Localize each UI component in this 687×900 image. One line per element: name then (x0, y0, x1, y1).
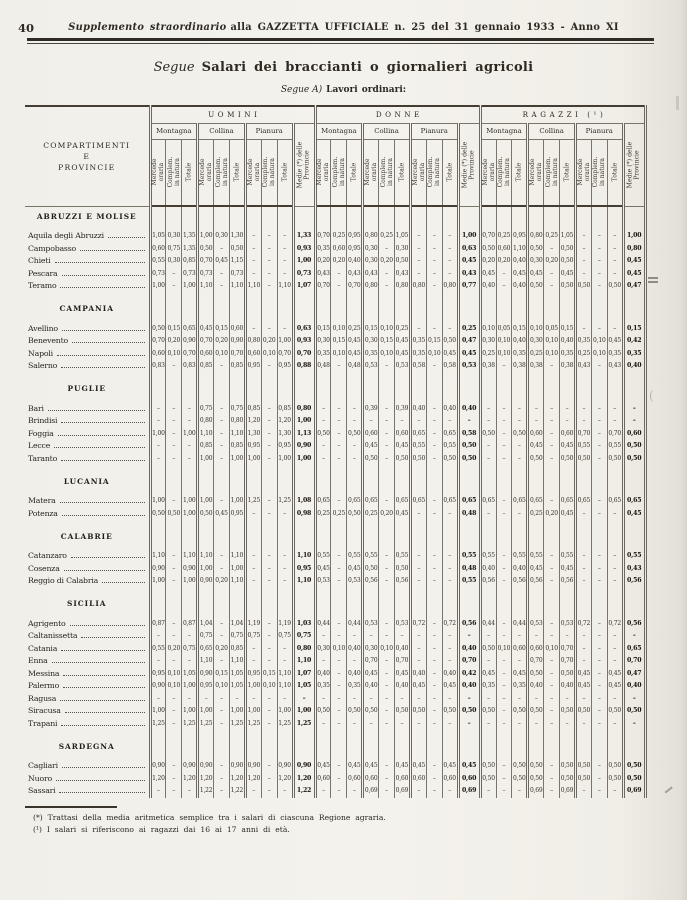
wage-value-cell: 0,50 (395, 563, 411, 576)
spacer-cell (198, 488, 214, 495)
wage-value-cell: 1,00 (182, 280, 198, 293)
wage-value-cell: 0,50 (410, 453, 426, 466)
region-header-cell (261, 210, 277, 223)
wage-value-cell: 0,95 (512, 230, 528, 243)
wage-value-cell: 1,05 (229, 680, 245, 693)
wage-value-cell: – (591, 630, 607, 643)
medie-value-cell: 0,47 (623, 280, 645, 293)
wage-value-cell: – (591, 575, 607, 588)
region-header-cell (442, 530, 458, 543)
province-name: Salerno (28, 362, 57, 370)
document-title: SegueSalari dei braccianti o giornalieri… (0, 60, 687, 75)
wage-value-cell: – (261, 563, 277, 576)
wage-value-cell: 0,90 (150, 680, 166, 693)
region-header-cell (496, 475, 512, 488)
spacer-cell (315, 316, 331, 323)
spacer-cell (229, 465, 245, 475)
wage-table-body: ABRUZZI E MOLISEAquila degli Abruzzi1,05… (25, 206, 645, 798)
region-header-cell (410, 383, 426, 396)
region-header-cell (166, 210, 182, 223)
region-header-cell (480, 210, 496, 223)
medie-value-cell: 0,42 (458, 668, 480, 681)
wage-value-cell: 1,22 (198, 785, 214, 798)
wage-value-cell: – (426, 630, 442, 643)
spacer-cell (480, 465, 496, 475)
wage-value-cell: 0,85 (198, 360, 214, 373)
wage-value-cell: – (496, 718, 512, 731)
wage-value-cell: – (410, 718, 426, 731)
wage-value-cell: – (277, 323, 293, 336)
spacer-cell (277, 753, 293, 760)
region-header-cell (277, 303, 293, 316)
medie-value-cell: 0,53 (458, 360, 480, 373)
province-name: Caltanissetta (28, 632, 77, 640)
spacer-cell (315, 293, 331, 303)
wage-value-cell: – (277, 508, 293, 521)
region-title-cell: LUCANIA (25, 475, 150, 488)
wage-value-cell: – (496, 550, 512, 563)
spacer-cell (575, 373, 591, 383)
wage-value-cell: 0,40 (512, 335, 528, 348)
wage-value-cell: 0,40 (363, 680, 379, 693)
wage-value-cell: – (426, 268, 442, 281)
wage-value-cell: – (544, 440, 560, 453)
wage-value-cell: – (245, 575, 261, 588)
wage-value-cell: 0,60 (528, 643, 544, 656)
wage-value-cell: – (214, 760, 230, 773)
wage-value-cell: 0,55 (315, 550, 331, 563)
subcol-header-label: Complem. in natura (379, 155, 393, 189)
wage-value-cell: – (214, 243, 230, 256)
spacer-cell (607, 730, 623, 740)
wage-value-cell: – (512, 415, 528, 428)
wage-value-cell: – (544, 773, 560, 786)
wage-value-cell: – (496, 268, 512, 281)
medie-value-cell: 0,80 (623, 243, 645, 256)
wage-value-cell: 0,45 (575, 680, 591, 693)
region-header-cell (182, 530, 198, 543)
spacer-cell (379, 316, 395, 323)
spacer-cell (150, 223, 166, 230)
spacer-cell (198, 223, 214, 230)
wage-value-cell: – (331, 693, 347, 706)
medie-value-cell: 0,50 (458, 453, 480, 466)
medie-value-cell: – (458, 693, 480, 706)
wage-value-cell: – (315, 718, 331, 731)
wage-value-cell: 0,70 (198, 335, 214, 348)
wage-value-cell: 0,25 (528, 348, 544, 361)
medie-value-cell: 0,65 (623, 495, 645, 508)
wage-value-cell: 0,65 (560, 495, 576, 508)
wage-value-cell: – (261, 243, 277, 256)
spacer-cell (607, 488, 623, 495)
wage-value-cell: – (512, 508, 528, 521)
province-row: Chieti0,550,300,850,700,451,15–––1,000,2… (25, 255, 645, 268)
subcol-header-label: Mercede oraria (577, 155, 591, 189)
region-header-cell (458, 598, 480, 611)
spacer-cell (182, 488, 198, 495)
region-header-cell (261, 303, 277, 316)
wage-value-cell: 0,60 (410, 773, 426, 786)
zone-header-uomini: Collina (198, 123, 246, 139)
region-header-cell (528, 210, 544, 223)
province-row: Nuoro1,20–1,201,20–1,201,20–1,201,200,60… (25, 773, 645, 786)
wage-value-cell: – (277, 693, 293, 706)
region-header-cell (458, 303, 480, 316)
province-name-wrap: Campobasso (25, 245, 149, 253)
spacer-cell (426, 396, 442, 403)
medie-value-cell: 0,69 (458, 785, 480, 798)
spacer-cell (544, 543, 560, 550)
spacer-cell (410, 316, 426, 323)
wage-value-cell: – (426, 255, 442, 268)
wage-value-cell: – (480, 718, 496, 731)
spacer-cell (261, 488, 277, 495)
province-name: Teramo (28, 282, 56, 290)
wage-value-cell: 0,05 (544, 323, 560, 336)
wage-value-cell: 1,10 (229, 550, 245, 563)
province-name: Cosenza (28, 565, 60, 573)
wage-value-cell: 0,40 (347, 643, 363, 656)
spacer-cell (182, 293, 198, 303)
region-header-cell (623, 475, 645, 488)
wage-value-cell: – (277, 643, 293, 656)
wage-value-cell: – (480, 693, 496, 706)
spacer-cell (623, 373, 645, 383)
wage-value-cell: 0,56 (512, 575, 528, 588)
medie-value-cell: 0,50 (458, 440, 480, 453)
spacer-cell (528, 611, 544, 618)
spacer-cell (512, 293, 528, 303)
province-row: Sassari–––1,22–1,22–––1,22–––0,69–0,69––… (25, 785, 645, 798)
wage-value-cell: 0,50 (560, 255, 576, 268)
wage-value-cell: – (261, 773, 277, 786)
dot-leader (61, 650, 144, 651)
medie-value-cell: 0,80 (293, 403, 315, 416)
wage-value-cell: – (607, 323, 623, 336)
wage-value-cell: 1,05 (182, 668, 198, 681)
spacer-cell (166, 588, 182, 598)
region-header-cell (591, 383, 607, 396)
spacer-cell (245, 293, 261, 303)
wage-value-cell: – (560, 718, 576, 731)
wage-value-cell: 0,30 (315, 643, 331, 656)
wage-value-cell: – (379, 243, 395, 256)
wage-value-cell: 0,50 (363, 563, 379, 576)
region-header-cell (575, 210, 591, 223)
wage-value-cell: 0,10 (214, 680, 230, 693)
wage-value-cell: – (410, 508, 426, 521)
wage-value-cell: – (261, 655, 277, 668)
wage-value-cell: 0,65 (480, 495, 496, 508)
wage-value-cell: 1,00 (150, 495, 166, 508)
wage-value-cell: – (363, 415, 379, 428)
wage-value-cell: 0,55 (607, 440, 623, 453)
province-name: Foggia (28, 430, 54, 438)
spacer-cell (293, 753, 315, 760)
wage-value-cell: – (591, 453, 607, 466)
province-name-wrap: Bari (25, 405, 149, 413)
wage-value-cell: 0,75 (198, 403, 214, 416)
wage-value-cell: 0,50 (560, 453, 576, 466)
wage-value-cell: – (426, 440, 442, 453)
wage-value-cell: 0,70 (575, 428, 591, 441)
spacer-cell (245, 488, 261, 495)
region-title-cell: CALABRIE (25, 530, 150, 543)
wage-value-cell: 0,10 (544, 335, 560, 348)
spacer-cell (480, 611, 496, 618)
spacer-cell (25, 465, 150, 475)
spacer-cell (496, 223, 512, 230)
spacer-cell (293, 520, 315, 530)
wage-value-cell: 0,45 (395, 668, 411, 681)
wage-value-cell: 0,65 (347, 495, 363, 508)
region-header-cell (528, 740, 544, 753)
wage-value-cell: 0,90 (150, 563, 166, 576)
spacer-cell (182, 753, 198, 760)
wage-value-cell: – (261, 440, 277, 453)
wage-value-cell: 0,50 (198, 508, 214, 521)
spacer-cell (245, 465, 261, 475)
medie-value-cell: 1,33 (293, 230, 315, 243)
wage-value-cell: 0,65 (410, 428, 426, 441)
subcol-header-label: Mercede oraria (529, 155, 543, 189)
subcol-header-label: Complem. in natura (592, 155, 606, 189)
wage-value-cell: 0,20 (480, 255, 496, 268)
spacer-cell (528, 588, 544, 598)
wage-value-cell: – (480, 508, 496, 521)
region-header-cell (480, 598, 496, 611)
dot-leader (60, 700, 144, 701)
region-header-cell (480, 530, 496, 543)
wage-value-cell: 0,45 (512, 668, 528, 681)
wage-value-cell: 0,10 (166, 680, 182, 693)
province-name: Brindisi (28, 417, 57, 425)
subcol-header-uomini: Totale (229, 139, 245, 206)
medie-value-cell: 0,42 (623, 335, 645, 348)
spacer-cell (245, 588, 261, 598)
wage-value-cell: – (575, 785, 591, 798)
dot-leader (71, 557, 145, 558)
wage-value-cell: 0,70 (480, 230, 496, 243)
wage-value-cell: 1,25 (150, 718, 166, 731)
wage-value-cell: – (166, 268, 182, 281)
province-row: Brindisi–––0,80–0,801,20–1,201,00–––––––… (25, 415, 645, 428)
spacer-cell (182, 730, 198, 740)
wage-value-cell: – (544, 680, 560, 693)
wage-value-cell: 0,85 (229, 643, 245, 656)
spacer-cell (458, 488, 480, 495)
region-header-cell (315, 475, 331, 488)
wage-value-cell: 0,35 (410, 335, 426, 348)
spacer-cell (575, 396, 591, 403)
spacer-cell (442, 588, 458, 598)
region-header-cell (442, 475, 458, 488)
spacer-cell (528, 396, 544, 403)
wage-value-cell: 0,90 (182, 760, 198, 773)
province-name: Matera (28, 497, 56, 505)
spacer-cell (150, 520, 166, 530)
spacer-cell (591, 373, 607, 383)
wage-value-cell: 0,60 (245, 348, 261, 361)
wage-value-cell: – (166, 705, 182, 718)
region-header-cell (623, 530, 645, 543)
wage-value-cell: – (426, 230, 442, 243)
wage-value-cell: – (544, 280, 560, 293)
spacer-cell (442, 373, 458, 383)
spacer-cell (410, 753, 426, 760)
wage-value-cell: – (591, 230, 607, 243)
wage-value-cell: – (331, 453, 347, 466)
province-row: Lecce–––0,85–0,850,95–0,950,90–––0,45–0,… (25, 440, 645, 453)
wage-value-cell: 0,20 (214, 575, 230, 588)
wage-value-cell: – (496, 280, 512, 293)
wage-value-cell: – (426, 718, 442, 731)
wage-value-cell: 0,15 (426, 335, 442, 348)
wage-value-cell: 0,80 (410, 280, 426, 293)
wage-value-cell: 0,30 (528, 255, 544, 268)
spacer-cell (150, 373, 166, 383)
wage-value-cell: 0,83 (182, 360, 198, 373)
wage-value-cell: – (410, 268, 426, 281)
wage-value-cell: 1,00 (198, 705, 214, 718)
wage-value-cell: – (496, 428, 512, 441)
medie-value-cell: 0,75 (293, 630, 315, 643)
wage-value-cell: 0,35 (347, 680, 363, 693)
province-name: Nuoro (28, 775, 52, 783)
wage-value-cell: – (150, 403, 166, 416)
region-header-cell (150, 383, 166, 396)
medie-value-cell: 0,60 (623, 428, 645, 441)
wage-value-cell: 0,70 (363, 655, 379, 668)
spacer-cell (277, 223, 293, 230)
wage-value-cell: 0,75 (229, 630, 245, 643)
province-name-wrap: Aquila degli Abruzzi (25, 232, 149, 240)
wage-value-cell: – (442, 693, 458, 706)
wage-value-cell: 0,50 (347, 508, 363, 521)
province-name-wrap: Enna (25, 657, 149, 665)
province-row: Salerno0,83–0,830,85–0,850,95–0,950,880,… (25, 360, 645, 373)
spacer-cell (25, 223, 150, 230)
wage-value-cell: 1,20 (245, 415, 261, 428)
spacer-cell (347, 488, 363, 495)
spacer-cell (426, 730, 442, 740)
spacer-cell (277, 611, 293, 618)
wage-value-cell: 1,10 (198, 280, 214, 293)
region-header-cell (544, 303, 560, 316)
spacer-cell (480, 730, 496, 740)
spacer-cell (496, 465, 512, 475)
province-name: Lecce (28, 442, 50, 450)
province-name: Benevento (28, 337, 68, 345)
region-header-cell (277, 210, 293, 223)
spacer-cell (331, 730, 347, 740)
zone-header-ragazzi: Collina (528, 123, 576, 139)
spacer-cell (261, 730, 277, 740)
wage-value-cell: – (496, 360, 512, 373)
spacer-cell (347, 611, 363, 618)
masthead: 40 Supplemento straordinarioalla GAZZETT… (0, 22, 687, 33)
spacer-cell (166, 488, 182, 495)
medie-value-cell: 0,40 (458, 403, 480, 416)
medie-value-cell: 0,45 (458, 760, 480, 773)
wage-value-cell: 1,10 (277, 680, 293, 693)
dot-leader (108, 237, 145, 238)
wage-value-cell: – (512, 453, 528, 466)
wage-value-cell: 0,55 (150, 255, 166, 268)
spacer-cell (560, 488, 576, 495)
wage-value-cell: 0,35 (607, 348, 623, 361)
wage-value-cell: 0,90 (150, 760, 166, 773)
region-header-cell (245, 383, 261, 396)
wage-value-cell: 0,15 (363, 323, 379, 336)
wage-value-cell: 0,50 (395, 453, 411, 466)
wage-value-cell: – (245, 243, 261, 256)
wage-value-cell: 0,45 (198, 323, 214, 336)
spacer-cell (182, 520, 198, 530)
wage-value-cell: 0,73 (150, 268, 166, 281)
wage-value-cell: – (560, 630, 576, 643)
subcol-header-label: Mercede oraria (412, 155, 426, 189)
wage-value-cell: – (591, 643, 607, 656)
spacer-cell (442, 293, 458, 303)
wage-value-cell: – (261, 718, 277, 731)
wage-value-cell: 0,20 (379, 255, 395, 268)
spacer-cell (480, 520, 496, 530)
spacer-cell (442, 753, 458, 760)
wage-value-cell: – (331, 575, 347, 588)
masthead-title: Supplemento straordinarioalla GAZZETTA U… (0, 22, 687, 33)
wage-value-cell: 1,00 (182, 495, 198, 508)
region-header-cell (379, 383, 395, 396)
dot-leader (61, 725, 144, 726)
wage-value-cell: 0,60 (198, 348, 214, 361)
spacer-cell (591, 465, 607, 475)
spacer-cell (442, 611, 458, 618)
spacer-cell (544, 588, 560, 598)
wage-value-cell: 0,53 (363, 618, 379, 631)
spacer-cell (560, 223, 576, 230)
wage-value-cell: – (379, 760, 395, 773)
wage-value-cell: – (591, 655, 607, 668)
wage-value-cell: 0,50 (315, 705, 331, 718)
region-header-cell (363, 210, 379, 223)
wage-value-cell: 0,90 (182, 563, 198, 576)
wage-value-cell: – (315, 403, 331, 416)
province-name: Agrigento (28, 620, 66, 628)
medie-value-cell: 0,65 (623, 643, 645, 656)
spacer-cell (496, 488, 512, 495)
wage-value-cell: 1,10 (229, 428, 245, 441)
spacer-cell (410, 223, 426, 230)
medie-value-cell: 0,43 (458, 268, 480, 281)
wage-value-cell: 0,58 (442, 360, 458, 373)
wage-value-cell: 0,35 (480, 680, 496, 693)
subcol-header-label: Totale (563, 155, 570, 189)
region-header-cell (261, 740, 277, 753)
wage-value-cell: 0,10 (426, 348, 442, 361)
wage-value-cell: 0,30 (480, 335, 496, 348)
wage-value-cell: – (182, 415, 198, 428)
region-header-cell (261, 530, 277, 543)
wage-value-cell: – (410, 785, 426, 798)
spacer-cell (363, 730, 379, 740)
subcol-header-label: Totale (186, 155, 193, 189)
wage-value-cell: – (410, 550, 426, 563)
wage-value-cell: 0,25 (331, 230, 347, 243)
scan-artifact (650, 390, 657, 402)
spacer-cell (426, 373, 442, 383)
